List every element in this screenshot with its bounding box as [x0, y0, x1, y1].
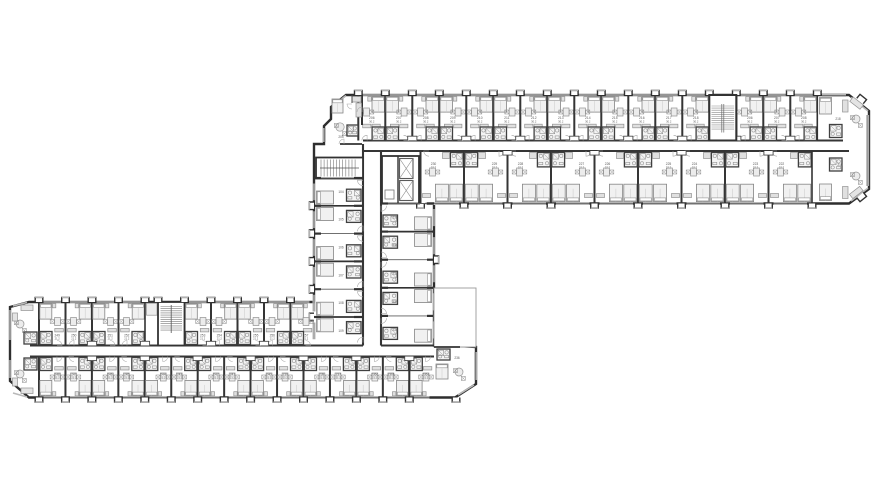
- svg-text:21.2: 21.2: [177, 376, 183, 380]
- svg-text:21.2: 21.2: [253, 337, 259, 341]
- svg-text:219: 219: [837, 163, 843, 167]
- svg-text:30.2: 30.2: [747, 119, 753, 123]
- svg-text:233: 233: [392, 272, 398, 276]
- svg-text:222: 222: [779, 162, 785, 166]
- svg-text:215: 215: [612, 116, 618, 120]
- svg-text:30.2: 30.2: [450, 119, 456, 123]
- svg-text:30.2: 30.2: [612, 119, 618, 123]
- svg-text:232: 232: [392, 244, 398, 248]
- svg-text:225: 225: [666, 162, 672, 166]
- svg-text:37.7: 37.7: [753, 166, 759, 170]
- svg-text:236: 236: [454, 356, 460, 360]
- svg-text:30.2: 30.2: [423, 119, 429, 123]
- svg-text:226: 226: [605, 162, 611, 166]
- svg-text:30.2: 30.2: [585, 119, 591, 123]
- svg-text:235: 235: [392, 328, 398, 332]
- svg-text:37.7: 37.7: [579, 166, 585, 170]
- svg-text:30.2: 30.2: [477, 119, 483, 123]
- svg-text:209: 209: [450, 116, 456, 120]
- svg-text:109: 109: [338, 329, 344, 333]
- svg-text:21.2: 21.2: [270, 337, 276, 341]
- svg-text:30.2: 30.2: [558, 119, 564, 123]
- svg-text:21.2: 21.2: [160, 376, 166, 380]
- svg-text:227: 227: [579, 162, 585, 166]
- svg-text:21.2: 21.2: [55, 376, 61, 380]
- svg-text:37.7: 37.7: [779, 166, 785, 170]
- svg-text:207: 207: [774, 116, 780, 120]
- svg-text:30.2: 30.2: [666, 119, 672, 123]
- svg-text:37.7: 37.7: [666, 166, 672, 170]
- svg-text:205: 205: [338, 135, 344, 139]
- svg-text:206: 206: [369, 116, 375, 120]
- svg-text:21.2: 21.2: [213, 376, 219, 380]
- svg-text:234: 234: [392, 300, 398, 304]
- svg-text:21.2: 21.2: [423, 376, 429, 380]
- svg-text:213: 213: [558, 116, 564, 120]
- svg-text:21.2: 21.2: [319, 376, 325, 380]
- svg-text:21.2: 21.2: [266, 376, 272, 380]
- svg-text:218: 218: [835, 117, 841, 121]
- svg-text:37.7: 37.7: [605, 166, 611, 170]
- svg-text:30.2: 30.2: [801, 119, 807, 123]
- svg-text:107: 107: [338, 273, 344, 277]
- svg-text:21.2: 21.2: [124, 337, 130, 341]
- svg-text:30.2: 30.2: [369, 119, 375, 123]
- svg-text:208: 208: [801, 116, 807, 120]
- svg-text:21.2: 21.2: [283, 376, 289, 380]
- svg-text:21.2: 21.2: [71, 337, 77, 341]
- svg-text:21.2: 21.2: [372, 376, 378, 380]
- svg-text:230: 230: [431, 162, 437, 166]
- svg-text:228: 228: [518, 162, 524, 166]
- svg-text:218: 218: [693, 116, 699, 120]
- svg-text:30.2: 30.2: [531, 119, 537, 123]
- svg-text:37.7: 37.7: [518, 166, 524, 170]
- svg-text:217: 217: [666, 116, 672, 120]
- svg-text:223: 223: [753, 162, 759, 166]
- svg-text:30.2: 30.2: [396, 119, 402, 123]
- svg-text:105: 105: [338, 218, 344, 222]
- svg-text:30.2: 30.2: [693, 119, 699, 123]
- svg-text:21.2: 21.2: [217, 337, 223, 341]
- svg-text:208: 208: [423, 116, 429, 120]
- svg-text:106: 106: [338, 246, 344, 250]
- svg-text:214: 214: [585, 116, 591, 120]
- svg-text:21.2: 21.2: [108, 376, 114, 380]
- svg-text:21.2: 21.2: [108, 337, 114, 341]
- svg-text:21.2: 21.2: [336, 376, 342, 380]
- svg-text:30.2: 30.2: [774, 119, 780, 123]
- svg-text:21.2: 21.2: [303, 337, 309, 341]
- svg-text:210: 210: [477, 116, 483, 120]
- svg-text:37.7: 37.7: [692, 166, 698, 170]
- svg-text:229: 229: [492, 162, 498, 166]
- svg-text:21.2: 21.2: [124, 376, 130, 380]
- svg-text:224: 224: [692, 162, 698, 166]
- svg-text:21.2: 21.2: [55, 337, 61, 341]
- svg-text:231: 231: [392, 216, 398, 220]
- svg-text:104: 104: [338, 190, 344, 194]
- svg-text:212: 212: [531, 116, 537, 120]
- svg-text:21.2: 21.2: [389, 376, 395, 380]
- svg-text:37.7: 37.7: [492, 166, 498, 170]
- svg-text:21.2: 21.2: [200, 337, 206, 341]
- svg-text:30.2: 30.2: [639, 119, 645, 123]
- svg-text:30.2: 30.2: [504, 119, 510, 123]
- svg-text:206: 206: [747, 116, 753, 120]
- svg-text:207: 207: [396, 116, 402, 120]
- svg-text:21.2: 21.2: [230, 376, 236, 380]
- svg-text:108: 108: [338, 301, 344, 305]
- svg-text:37.7: 37.7: [431, 166, 437, 170]
- svg-text:211: 211: [504, 116, 509, 120]
- svg-text:216: 216: [639, 116, 645, 120]
- svg-text:21.2: 21.2: [71, 376, 77, 380]
